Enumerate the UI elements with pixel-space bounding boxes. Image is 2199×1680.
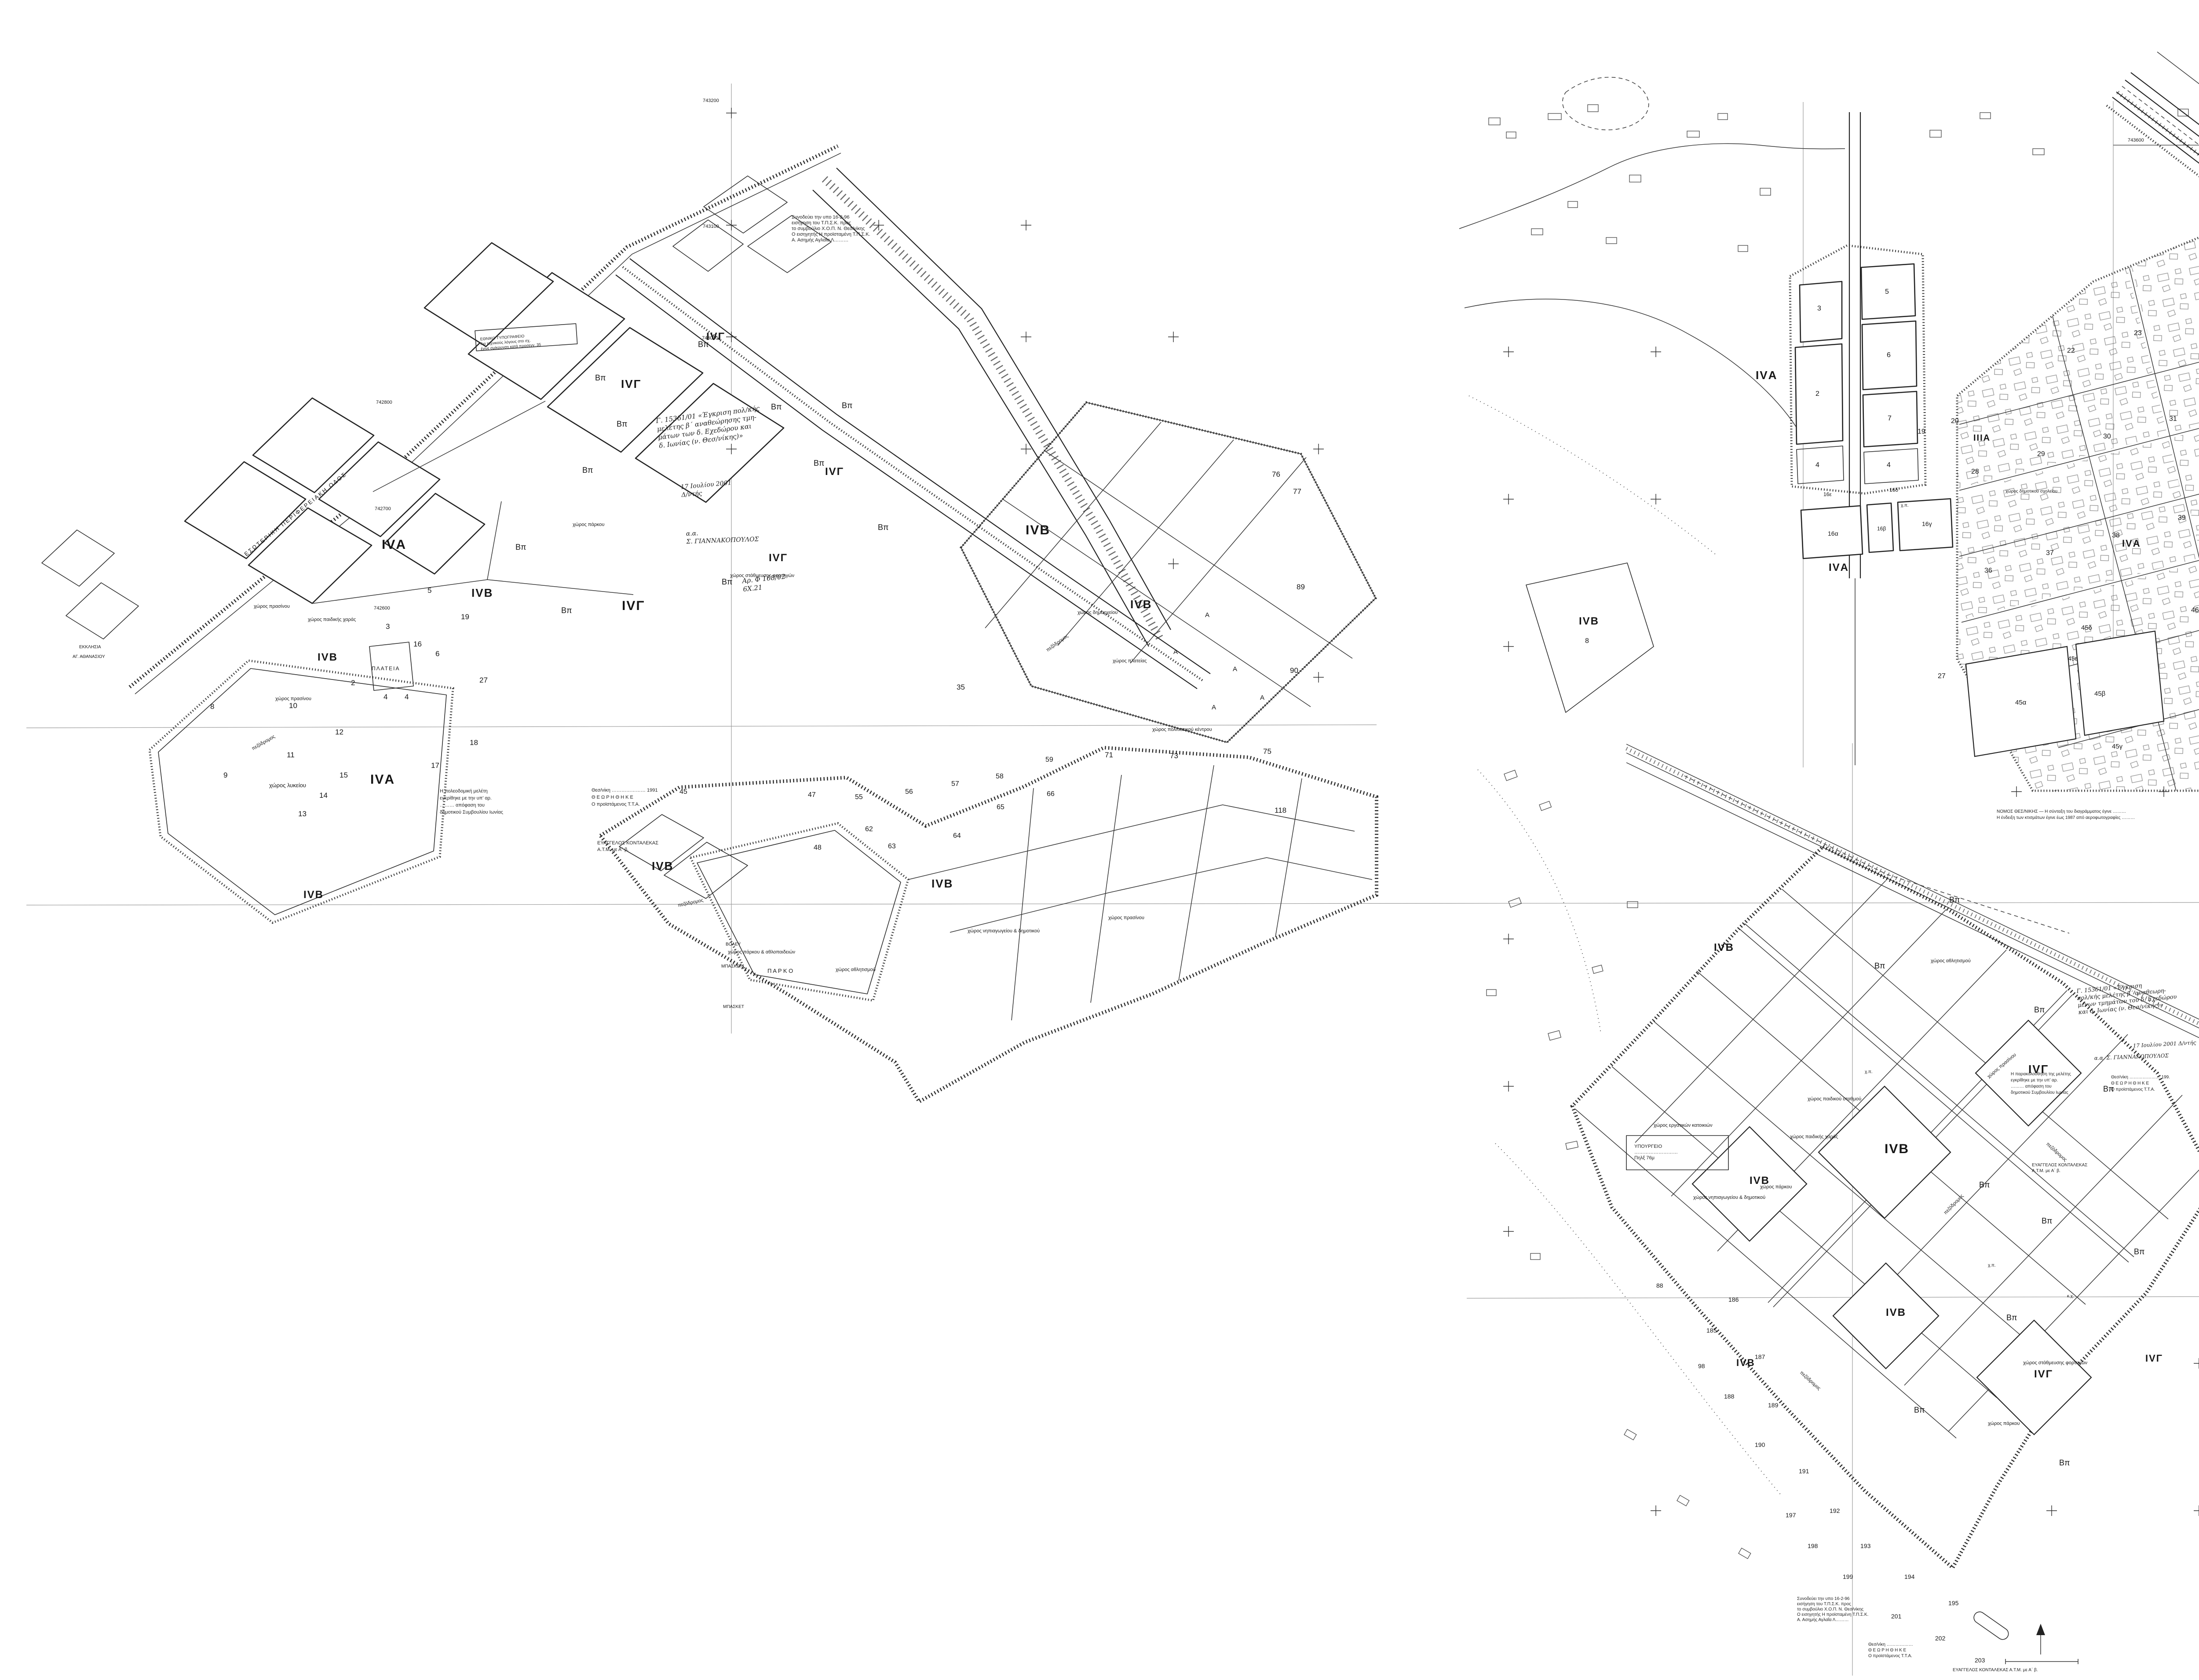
map-label: χώρος πλατείας	[1113, 658, 1147, 664]
map-label: 201	[1891, 1613, 1902, 1620]
map-label: IVΒ	[1026, 523, 1050, 537]
map-label: 73	[1170, 752, 1178, 760]
map-label: 20	[1951, 417, 1959, 425]
map-label: χώρος στάθμευσης φορτηγών	[2023, 1360, 2088, 1366]
map-label: IVΒ	[1714, 942, 1734, 953]
map-label: 194	[1904, 1573, 1915, 1580]
map-label: χώρος παιδικής χαράς	[1790, 1134, 1838, 1139]
map-label: ΒΟΛΕΫ	[726, 942, 741, 947]
map-label: 46	[2191, 606, 2199, 614]
map-label: 89	[1297, 583, 1305, 591]
map-label: 66	[1047, 790, 1055, 798]
map-label: 190	[1755, 1441, 1765, 1448]
map-label: 45δ	[2081, 624, 2092, 632]
map-label: πεζόδρομος	[1799, 1370, 1822, 1391]
map-label: χώρος παιδικού σταθμού	[1808, 1096, 1861, 1102]
map-label: 186	[1728, 1296, 1739, 1303]
annotation: Η πολεοδομική μελέτηεγκρίθηκε με την υπ’…	[440, 789, 503, 815]
map-label: 58	[996, 773, 1004, 780]
map-label: ΠΛΑΤΕΙΑ	[372, 665, 400, 672]
map-label: IVΓ	[621, 377, 641, 391]
map-label: Βπ	[2134, 1247, 2144, 1256]
map-label: 743200	[703, 98, 719, 103]
map-label: IVΑ	[382, 537, 406, 552]
annotation: ΝΟΜΟΣ ΘΕΣ/ΝΙΚΗΣ — Η σύνταξη του διαγράμμ…	[1997, 809, 2135, 820]
map-label: IVΓ	[769, 552, 788, 564]
map-label: χώρος πάρκου	[573, 522, 604, 527]
map-label: 4	[1887, 461, 1891, 469]
map-label: 16γ	[1922, 520, 1932, 527]
map-label: 19	[461, 613, 469, 621]
map-label: 4	[405, 693, 409, 701]
map-label: 6	[435, 650, 439, 658]
map-label: χώρος πολιτιστικού κέντρου	[1152, 727, 1212, 732]
map-label: χώρος εργατικών κατοικιών	[1654, 1123, 1713, 1128]
map-label: 4	[384, 693, 387, 701]
triangle-block-ivb8	[1526, 563, 1654, 712]
map-label: 18	[470, 738, 478, 747]
dense-grid	[1957, 237, 2199, 792]
map-label: χ.π.	[1865, 1070, 1873, 1074]
map-label: 16β	[1877, 526, 1886, 532]
map-label: Α	[1173, 648, 1178, 656]
map-label: Βπ	[582, 466, 593, 475]
map-label: 14	[319, 791, 328, 800]
map-label: Βπ	[878, 523, 888, 532]
map-label: 31	[2169, 415, 2177, 423]
map-label: 90	[1290, 666, 1298, 675]
map-label: ΙΙΙΑ	[1973, 433, 1991, 443]
map-label: 27	[1938, 672, 1946, 680]
map-label: πεζόδρομος	[2045, 1141, 2068, 1162]
map-label: 17	[431, 761, 439, 770]
map-label: 199	[1843, 1573, 1853, 1580]
annotation: Θεσ/νίκη ………………… 1991Θ Ε Ω Ρ Η Θ Η Κ ΕΟ …	[592, 788, 658, 807]
fold-lines	[26, 84, 2199, 1676]
south-plan	[1572, 847, 2199, 1642]
map-label: πεζόδρομος	[1045, 633, 1070, 653]
north-arrow-icon	[2005, 1624, 2078, 1664]
map-label: 71	[1105, 751, 1113, 759]
map-label: 45β	[2094, 690, 2106, 698]
map-label: 56	[905, 788, 913, 796]
map-label: 16ε	[1823, 491, 1832, 497]
map-label: 189	[1768, 1402, 1779, 1409]
map-label: ΜΠΑΣΚΕΤ	[721, 964, 742, 969]
map-label: Βπ	[2059, 1458, 2070, 1467]
annotation: ΕΥΑΓΓΕΛΟΣ ΚΟΝΤΑΛΕΚΑΣ Α.Τ.Μ. με Α΄ β.	[1953, 1667, 2038, 1673]
map-label: 28	[1971, 468, 1979, 475]
map-label: 10	[289, 701, 297, 710]
sheet-west: IVΑIVΑIVΒIVΒIVΒIVΒIVΒIVΒIVΒIVΓIVΓIVΓIVΓI…	[42, 98, 1377, 1102]
map-label: 77	[1293, 487, 1301, 496]
map-label: IVΒ	[318, 651, 338, 663]
map-label: IVΒ	[1885, 1142, 1909, 1156]
map-label: 8	[1585, 637, 1589, 645]
map-label: ΕΚΚΛΗΣΙΑ	[79, 645, 101, 650]
map-label: 57	[951, 780, 959, 788]
map-label: IVΒ	[1886, 1307, 1906, 1318]
map-label: 35	[957, 683, 965, 691]
map-label: Α	[1233, 665, 1237, 673]
road-corridor-a	[813, 168, 1171, 646]
map-label: Βπ	[722, 577, 732, 586]
map-label: χώρος πάρκου & αθλοπαιδειών	[728, 950, 796, 955]
map-label: 16	[413, 640, 422, 648]
map-label: 2	[1815, 390, 1819, 398]
map-label: 88	[1656, 1282, 1663, 1289]
map-label: 7	[1888, 415, 1892, 422]
map-label: 76	[1272, 470, 1280, 478]
map-label: Βπ	[1914, 1406, 1925, 1414]
central-blocks	[1526, 112, 1953, 765]
map-label: IVΒ	[652, 859, 673, 873]
lower-wing	[600, 748, 1377, 1102]
map-label: 30	[2103, 433, 2111, 440]
map-label: 191	[1799, 1468, 1809, 1475]
map-label: χώρος αθλητισμού	[836, 967, 876, 972]
map-label: IVΓ	[2034, 1368, 2053, 1380]
map-label: χώρος πρασίνου	[1108, 915, 1144, 920]
blocks-iva	[42, 398, 485, 639]
map-label: Βπ	[814, 459, 824, 467]
map-label: IVΒ	[931, 877, 953, 890]
map-label: 27	[479, 676, 488, 684]
survey-crosses-west	[726, 108, 1324, 683]
sheet-south: IVΒIVΒIVΒIVΒIVΒIVΓIVΓIVΓΒπΒπΒπΒπΒπΒπΒπΒπ…	[1478, 744, 2199, 1673]
map-label: 202	[1935, 1635, 1946, 1642]
map-label: 19	[1918, 428, 1925, 435]
map-label: IVΒ	[1130, 598, 1152, 611]
map-label: 193	[1860, 1542, 1871, 1549]
annotation: ΕΥΑΓΓΕΛΟΣ ΚΟΝΤΑΛΕΚΑΣΑ.Τ.Μ. με Α΄ β.	[2032, 1163, 2087, 1173]
map-label: IVΑ	[2122, 538, 2141, 549]
blocks-ivg	[313, 176, 831, 690]
map-label: IVΒ	[471, 586, 493, 599]
map-label: 45	[679, 788, 687, 796]
map-label: IVΒ	[303, 889, 324, 901]
map-label: Βπ	[2034, 1005, 2045, 1014]
map-label: 47	[808, 791, 816, 799]
buildings-north	[1489, 105, 2199, 256]
map-label: Βπ	[515, 543, 526, 551]
map-label: 37	[2046, 549, 2054, 557]
map-label: Βπ	[1874, 961, 1885, 970]
map-label: 39	[2178, 514, 2186, 522]
map-label: 743100	[703, 224, 719, 229]
map-label: χώρος πρασίνου	[254, 604, 290, 609]
map-label: Α	[1212, 704, 1216, 711]
map-label: 5	[1885, 288, 1889, 296]
map-label: κ.χ.	[2067, 1294, 2074, 1299]
map-label: 63	[888, 843, 896, 850]
map-label: 2	[351, 679, 355, 687]
map-label: 59	[1045, 756, 1053, 763]
grid-ivb-east	[961, 402, 1376, 742]
map-label: 198	[1808, 1542, 1818, 1549]
map-label: 23	[2134, 329, 2142, 337]
map-label: 6	[1887, 351, 1891, 359]
map-label: χώρος πάρκου	[1988, 1421, 2020, 1426]
map-label: 743000	[702, 336, 718, 341]
map-label: 13	[298, 810, 307, 818]
map-label: πεζόδρομος	[677, 898, 704, 908]
map-label: 742600	[374, 606, 390, 611]
map-label: 38	[2112, 532, 2120, 539]
map-label: πεζόδρομος	[251, 734, 276, 752]
map-label: χώρος δημοτικού σχολείου	[2005, 489, 2057, 494]
map-label: 185	[1706, 1327, 1717, 1334]
map-label: 742800	[376, 400, 392, 405]
map-label: 3	[1817, 305, 1821, 312]
map-label: Βπ	[1979, 1180, 1990, 1189]
map-label: χώρος νηπιαγωγείου & δημοτικού	[1693, 1195, 1765, 1200]
map-label: Α	[1260, 694, 1264, 701]
map-label: πεζόδρομος	[1943, 1193, 1965, 1216]
annotation: ΕΥΑΓΓΕΛΟΣ ΚΟΝΤΑΛΕΚΑΣΑ.Τ.Μ. με Α΄ β.	[597, 840, 658, 852]
map-label: ΜΠΑΣΚΕΤ	[723, 1004, 744, 1009]
map-label: χώρος δημαρχείου	[1078, 610, 1118, 615]
map-label: 65	[997, 803, 1005, 811]
sheet-north: IVΑIVΑIVΑIVΒ8ΙΙΙΑΙΙΑΙΙΑΙΙΑ234456716α16β1…	[1459, 52, 2199, 820]
map-label: χώρος αθλητισμού	[1931, 958, 1971, 964]
map-label: χώρος πρασίνου	[275, 696, 311, 701]
map-label: 203	[1975, 1657, 1985, 1664]
map-label: 11	[287, 751, 295, 759]
map-label: Βπ	[2042, 1216, 2052, 1225]
map-label: Βπ	[771, 402, 782, 411]
map-label: 45γ	[2112, 743, 2123, 750]
map-label: χώρος λυκείου	[269, 782, 306, 789]
map-label: IVΑ	[370, 772, 395, 787]
map-label: IVΑ	[1756, 369, 1777, 382]
annotation: α.α.Σ. ΓΙΑΝΝΑΚΟΠΟΥΛΟΣ	[686, 528, 759, 545]
map-label: 16δ	[1889, 487, 1898, 493]
map-label: 187	[1755, 1353, 1765, 1360]
map-label: 118	[1275, 806, 1286, 814]
rounded-parcel	[1972, 1610, 2011, 1642]
map-canvas: IVΑIVΑIVΒIVΒIVΒIVΒIVΒIVΒIVΒIVΓIVΓIVΓIVΓI…	[0, 0, 2199, 1680]
map-label: 45ε	[2068, 655, 2078, 662]
annotation: Θεσ/νίκη ………………Θ Ε Ω Ρ Η Θ Η Κ ΕΟ προϊστ…	[1868, 1642, 1913, 1658]
map-label: 55	[855, 793, 863, 801]
map-label: 192	[1830, 1507, 1840, 1514]
map-label: IVΓ	[2145, 1353, 2163, 1364]
map-label: 12	[335, 728, 343, 736]
map-label: 16α	[1828, 530, 1838, 537]
map-label: 195	[1948, 1600, 1959, 1607]
map-label: 9	[223, 771, 227, 779]
map-label: Βπ	[561, 606, 572, 615]
map-label: 75	[1263, 747, 1271, 756]
map-svg: IVΑIVΑIVΒIVΒIVΒIVΒIVΒIVΒIVΒIVΓIVΓIVΓIVΓI…	[0, 0, 2199, 1680]
map-label: 62	[865, 825, 873, 833]
map-label: Α	[1205, 611, 1209, 619]
map-label: IVΒ	[1736, 1357, 1755, 1368]
map-label: χ.π.	[1901, 503, 1909, 508]
map-label: χ.π.	[1988, 1263, 1996, 1268]
map-label: Βπ	[617, 420, 627, 428]
map-label: ΑΓ. ΑΘΑΝΑΣΙΟΥ	[73, 654, 105, 659]
map-label: IVΒ	[1579, 615, 1599, 627]
annotation: Συνοδεύει την υπο 16-2-96εισήγηση του Τ.…	[1797, 1596, 1868, 1622]
map-label: 743600	[2128, 138, 2144, 143]
map-label: 4	[1815, 461, 1819, 469]
map-label: 188	[1724, 1393, 1735, 1400]
map-label: 5	[427, 586, 431, 595]
map-label: Π Α Ρ Κ Ο	[767, 968, 793, 974]
map-label: 742700	[375, 506, 391, 511]
map-label: 48	[814, 844, 822, 851]
map-label: χώρος πάρκου	[1760, 1184, 1792, 1190]
annotation: Συνοδεύει την υπο 16-2-96εισήγηση του Τ.…	[792, 215, 870, 243]
annotation: α.α. Σ. ΓΙΑΝΝΑΚΟΠΟΥΛΟΣ	[2094, 1052, 2169, 1061]
map-label: 45α	[2015, 699, 2027, 706]
map-label: IVΓ	[622, 599, 645, 613]
map-label: Βπ	[2006, 1313, 2017, 1322]
map-label: Βπ	[698, 340, 709, 349]
map-label: 15	[340, 771, 348, 779]
map-label: IVΑ	[1829, 562, 1849, 573]
map-label: 8	[210, 702, 214, 711]
map-label: 22	[2067, 347, 2075, 354]
map-label: 3	[386, 622, 390, 631]
rural-roads	[1459, 77, 1845, 554]
map-label: Βπ	[842, 401, 852, 410]
map-label: Βπ	[1949, 895, 1960, 904]
map-label: 197	[1786, 1512, 1796, 1519]
map-label: χώρος νηπιαγωγείου & δημοτικού	[968, 928, 1040, 934]
map-label: IVΓ	[825, 466, 844, 478]
map-label: 29	[2037, 450, 2045, 458]
map-label: Βπ	[595, 373, 606, 382]
annotation: 17 Ιουλίου 2001 Δ/ντής	[2133, 1039, 2196, 1049]
map-label: 64	[953, 832, 961, 840]
map-label: 98	[1698, 1362, 1705, 1370]
map-label: 36	[1984, 567, 1992, 574]
annotation: ΥΠΟΥΡΓΕΙΟ………………………Πηλξ 76μ	[1634, 1144, 1678, 1161]
map-label: χώρος παιδικής χαράς	[308, 617, 356, 622]
